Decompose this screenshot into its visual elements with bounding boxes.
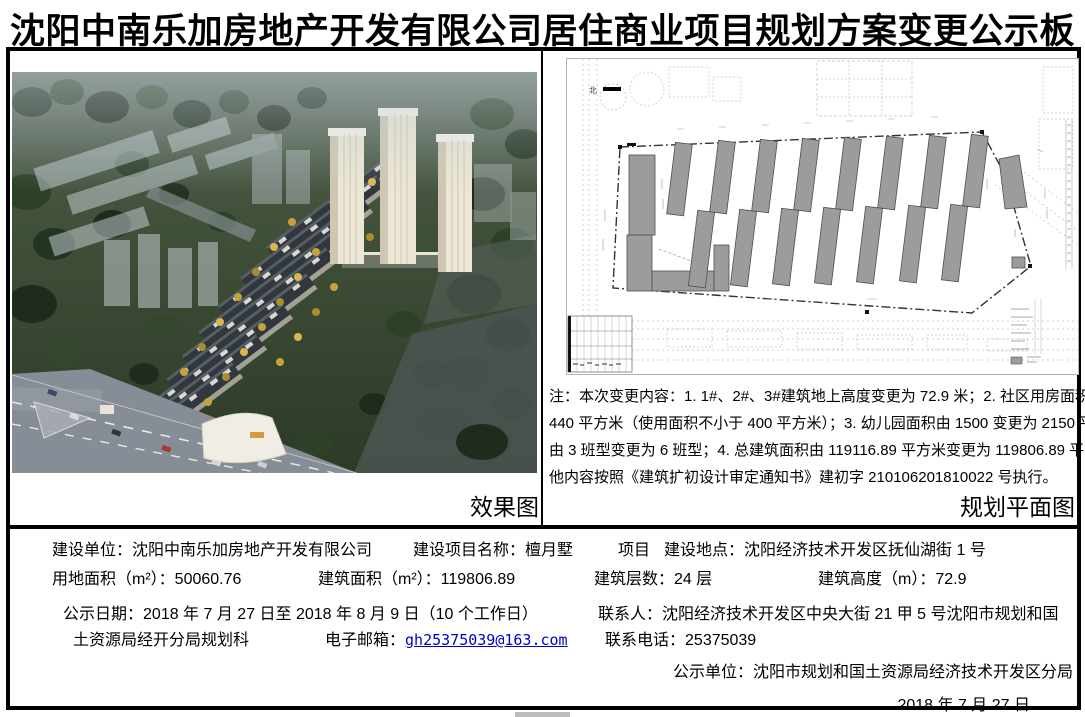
land-area-value: 50060.76 (175, 571, 242, 588)
contact-address-continued: 土资源局经开分局规划科 (73, 626, 249, 650)
scrollbar-artifact[interactable] (515, 712, 570, 717)
building-floors-label: 建筑层数： (594, 571, 674, 588)
detail-row-4: 土资源局经开分局规划科 电子邮箱：gh25375039@163.com 联系电话… (10, 626, 1077, 646)
contact-phone: 联系电话：25375039 (605, 626, 756, 650)
horizontal-divider (10, 525, 1077, 529)
publicity-date: 2018 年 7 月 27 日 (897, 691, 1030, 715)
vertical-divider (541, 51, 543, 525)
publicity-period: 公示日期：2018 年 7 月 27 日至 2018 年 8 月 9 日（10 … (63, 600, 538, 624)
publicity-period-label: 公示日期： (63, 606, 143, 623)
detail-row-2: 用地面积（m²）：50060.76 建筑面积（m²）：119806.89 建筑层… (10, 565, 1077, 585)
contact-phone-value: 25375039 (685, 632, 756, 649)
contact-address-value: 沈阳经济技术开发区中央大街 21 甲 5 号沈阳市规划和国 (662, 606, 1058, 623)
construction-unit-label: 建设单位： (52, 542, 132, 559)
project-location-value: 沈阳经济技术开发区抚仙湖街 1 号 (744, 542, 986, 559)
detail-row-1: 建设单位：沈阳中南乐加房地产开发有限公司 建设项目名称：檀月墅 项目 建设地点：… (10, 536, 1077, 556)
note-line: 注：本次变更内容：1. 1#、2#、3#建筑地上高度变更为 72.9 米；2. … (549, 383, 1081, 410)
plan-corner-buildings (999, 155, 1027, 268)
detail-row-3: 公示日期：2018 年 7 月 27 日至 2018 年 8 月 9 日（10 … (10, 600, 1077, 620)
project-name: 建设项目名称：檀月墅 (413, 536, 573, 560)
building-floors: 建筑层数：24 层 (594, 565, 712, 589)
notice-board-page: 沈阳中南乐加房地产开发有限公司居住商业项目规划方案变更公示板 (0, 0, 1085, 717)
construction-unit: 建设单位：沈阳中南乐加房地产开发有限公司 (52, 536, 372, 560)
note-line: 由 3 班型变更为 6 班型；4. 总建筑面积由 119116.89 平方米变更… (549, 437, 1081, 464)
building-area-label: 建筑面积（m²）： (318, 571, 441, 588)
publicity-unit-value: 沈阳市规划和国土资源局经济技术开发区分局 (753, 664, 1073, 681)
building-area-value: 119806.89 (441, 571, 515, 588)
project-location-label: 建设地点： (664, 542, 744, 559)
svg-text:北: 北 (589, 86, 597, 95)
project-name-label: 建设项目名称： (413, 542, 525, 559)
north-arrow-icon: 北 (589, 84, 626, 110)
rendering-caption: 效果图 (340, 488, 539, 522)
plan-building-row-bottom (688, 204, 967, 288)
land-area-label: 用地面积（m²）： (52, 571, 175, 588)
rendering-image (12, 72, 537, 473)
plan-caption: 规划平面图 (810, 488, 1075, 522)
plan-side-notes (1035, 119, 1072, 354)
email-label: 电子邮箱： (325, 632, 405, 649)
plan-table (568, 316, 632, 372)
construction-unit-value: 沈阳中南乐加房地产开发有限公司 (132, 542, 372, 559)
site-plan-image: 北 (566, 58, 1079, 375)
email-link[interactable]: gh25375039@163.com (405, 631, 568, 649)
atmosphere-haze (12, 72, 537, 192)
building-floors-value: 24 层 (674, 571, 712, 588)
contact-phone-label: 联系电话： (605, 632, 685, 649)
detail-row-6: 2018 年 7 月 27 日 (10, 691, 1077, 711)
plan-legend (1011, 309, 1041, 364)
publicity-period-value: 2018 年 7 月 27 日至 2018 年 8 月 9 日（10 个工作日） (143, 606, 538, 623)
project-location: 建设地点：沈阳经济技术开发区抚仙湖街 1 号 (664, 536, 986, 560)
project-name-suffix: 项目 (618, 536, 650, 560)
publicity-unit: 公示单位：沈阳市规划和国土资源局经济技术开发区分局 (673, 658, 1073, 682)
contact-address: 联系人：沈阳经济技术开发区中央大街 21 甲 5 号沈阳市规划和国 (598, 600, 1059, 624)
email: 电子邮箱：gh25375039@163.com (325, 626, 568, 650)
note-line: 440 平方米（使用面积不小于 400 平方米）；3. 幼儿园面积由 1500 … (549, 410, 1081, 437)
note-line: 他内容按照《建筑扩初设计审定通知书》建初字 210106201810022 号执… (549, 464, 1081, 491)
publicity-unit-label: 公示单位： (673, 664, 753, 681)
building-area: 建筑面积（m²）：119806.89 (318, 565, 515, 589)
notice-board-frame: 效果图 (6, 47, 1081, 710)
plan-building-row-top (667, 134, 989, 216)
land-area: 用地面积（m²）：50060.76 (52, 565, 241, 589)
project-name-value: 檀月墅 (525, 542, 573, 559)
contact-label: 联系人： (598, 606, 662, 623)
building-height-label: 建筑高度（m）： (818, 571, 935, 588)
detail-row-5: 公示单位：沈阳市规划和国土资源局经济技术开发区分局 (10, 658, 1077, 678)
building-height-value: 72.9 (935, 571, 966, 588)
building-height: 建筑高度（m）：72.9 (818, 565, 966, 589)
plan-change-note: 注：本次变更内容：1. 1#、2#、3#建筑地上高度变更为 72.9 米；2. … (549, 383, 1081, 491)
